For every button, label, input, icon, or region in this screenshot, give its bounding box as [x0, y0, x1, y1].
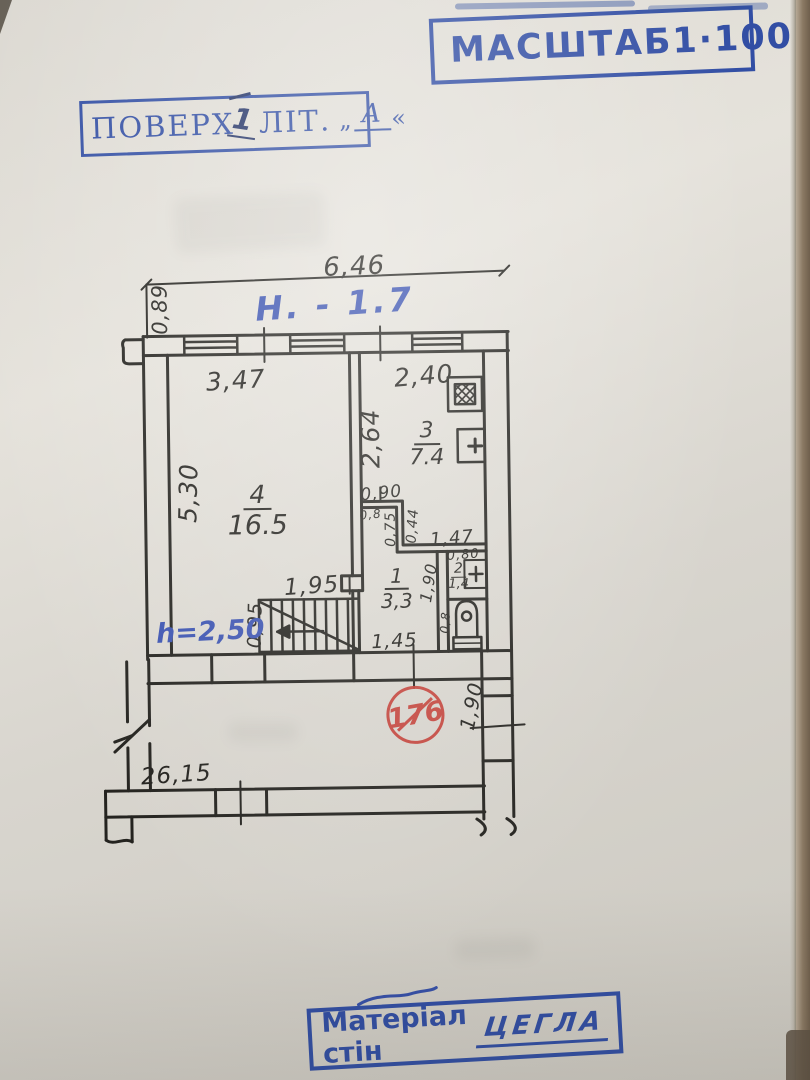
room-height-note: h=2,50 — [155, 614, 265, 650]
dim-building-length: 26,15 — [140, 760, 212, 791]
room-number: 3 — [413, 419, 439, 445]
floor-stamp-prefix: ПОВЕРХ — [90, 107, 235, 146]
room-area: 16.5 — [228, 510, 289, 542]
dim-jog-width: 0,44 — [404, 508, 423, 544]
room-number: 2 — [451, 562, 466, 578]
dim-door-width: 0,90 — [360, 481, 404, 505]
dim-room4-width: 3,47 — [205, 364, 266, 397]
floor-plan-drawing: 6,46 0,89 3,47 2,40 2,64 5,30 0,90 0,8 0… — [0, 0, 810, 1080]
room-label-living: 4 16.5 — [227, 481, 288, 542]
room-area: 3,3 — [381, 589, 413, 612]
dim-room4-depth: 5,30 — [173, 463, 203, 523]
photo-corner-shadow — [0, 0, 12, 34]
dim-wc-side: 0,8 — [437, 611, 453, 634]
toilet-icon — [453, 601, 482, 649]
dim-hall-width: 1,95 — [283, 572, 340, 602]
dim-hall-bottom-width: 1,45 — [371, 629, 418, 653]
scale-stamp-value: 1·100 — [672, 17, 794, 62]
unit-number: 176 — [385, 695, 446, 735]
photo-corner-shadow — [786, 1030, 810, 1080]
scale-stamp: МАСШТАБ 1·100 — [429, 5, 755, 85]
room-label-wc: 2 1,4 — [448, 562, 469, 593]
staircase — [259, 599, 360, 652]
dim-nook-left: 0,8 — [359, 506, 382, 522]
sink-icon-kitchen — [457, 429, 484, 462]
dim-top-width: 6,46 — [323, 250, 386, 282]
dim-nook-depth: 0,75 — [383, 512, 399, 547]
dim-left-offset: 0,89 — [147, 284, 172, 335]
room-area: 7.4 — [409, 445, 444, 471]
room-area: 1,4 — [448, 578, 469, 593]
room-label-hall: 1 3,3 — [380, 566, 412, 613]
scale-stamp-label: МАСШТАБ — [449, 22, 673, 71]
material-value-handwritten: ЦЕГЛА — [476, 1005, 612, 1048]
close-quote: « — [391, 104, 409, 133]
room-number: 1 — [384, 566, 409, 590]
paper-edge — [790, 0, 796, 1080]
floor-plan-document-photo: 6,46 0,89 3,47 2,40 2,64 5,30 0,90 0,8 0… — [0, 0, 810, 1080]
floor-letter-stamp: ПОВЕРХ 1 ЛІТ. „ А « — [79, 91, 371, 157]
floor-number-handwritten: 1 — [227, 101, 260, 141]
dim-room3-width: 2,40 — [393, 359, 455, 393]
floor-stamp-label: ЛІТ. — [258, 103, 331, 139]
room-label-kitchen: 3 7.4 — [409, 419, 445, 471]
material-stamp-label: Матеріал стін — [320, 1000, 469, 1070]
open-quote: „ — [339, 106, 354, 134]
room-number: 4 — [243, 481, 271, 510]
building-letter-handwritten: А — [353, 98, 392, 131]
table-background-strip — [794, 0, 810, 1080]
dim-room3-depth: 2,64 — [356, 408, 386, 468]
